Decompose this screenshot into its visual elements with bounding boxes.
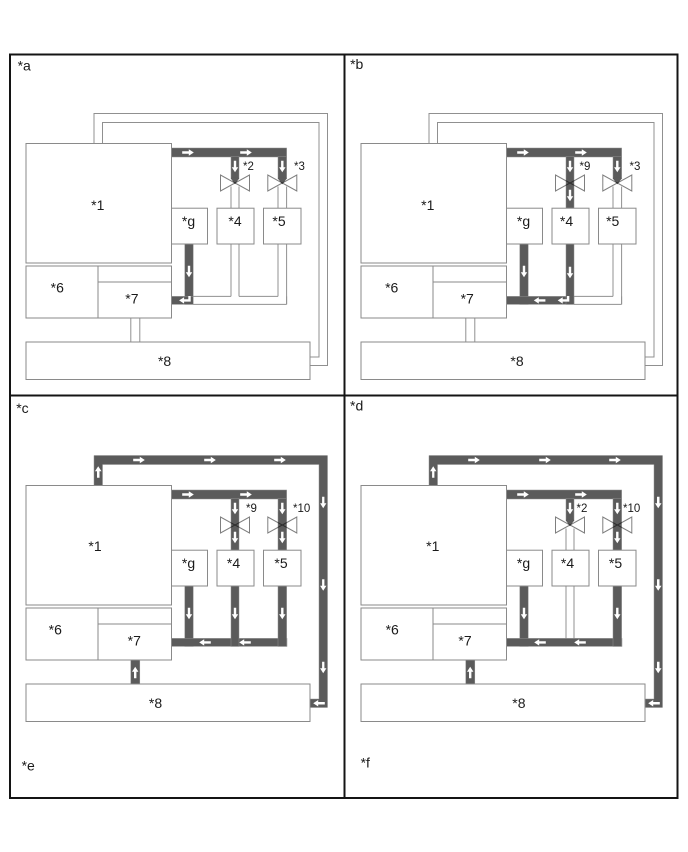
svg-text:*c: *c (16, 400, 28, 416)
svg-text:*g: *g (517, 213, 530, 229)
svg-text:*7: *7 (125, 291, 138, 307)
svg-text:*6: *6 (51, 280, 64, 296)
svg-text:*6: *6 (49, 622, 62, 638)
svg-text:*5: *5 (606, 213, 619, 229)
svg-text:*7: *7 (461, 291, 474, 307)
svg-text:*8: *8 (158, 353, 171, 369)
svg-text:*8: *8 (149, 695, 162, 711)
svg-text:*4: *4 (561, 555, 574, 571)
svg-text:*g: *g (517, 555, 530, 571)
svg-text:*6: *6 (386, 622, 399, 638)
svg-text:*1: *1 (421, 197, 434, 213)
svg-text:*7: *7 (458, 633, 471, 649)
svg-text:*6: *6 (385, 280, 398, 296)
svg-text:*7: *7 (128, 633, 141, 649)
svg-text:*g: *g (182, 555, 195, 571)
svg-text:*f: *f (361, 755, 370, 771)
svg-text:*2: *2 (577, 503, 588, 515)
svg-text:*2: *2 (243, 161, 254, 173)
svg-text:*4: *4 (560, 213, 573, 229)
svg-text:*10: *10 (623, 503, 640, 515)
svg-text:*10: *10 (293, 503, 310, 515)
svg-text:*g: *g (182, 213, 195, 229)
svg-text:*1: *1 (426, 538, 439, 554)
svg-text:*4: *4 (228, 213, 241, 229)
svg-text:*3: *3 (630, 161, 641, 173)
svg-text:*8: *8 (512, 695, 525, 711)
svg-text:*d: *d (350, 398, 363, 414)
svg-text:*1: *1 (91, 197, 104, 213)
svg-text:*9: *9 (246, 503, 257, 515)
svg-text:*8: *8 (510, 353, 523, 369)
svg-text:*9: *9 (580, 161, 591, 173)
svg-text:*1: *1 (88, 538, 101, 554)
svg-text:*5: *5 (274, 555, 287, 571)
svg-text:*4: *4 (227, 555, 240, 571)
svg-text:*5: *5 (272, 213, 285, 229)
svg-text:*e: *e (22, 758, 35, 774)
svg-text:*3: *3 (294, 161, 305, 173)
svg-text:*b: *b (350, 56, 363, 72)
svg-text:*a: *a (18, 58, 31, 74)
svg-text:*5: *5 (609, 555, 622, 571)
